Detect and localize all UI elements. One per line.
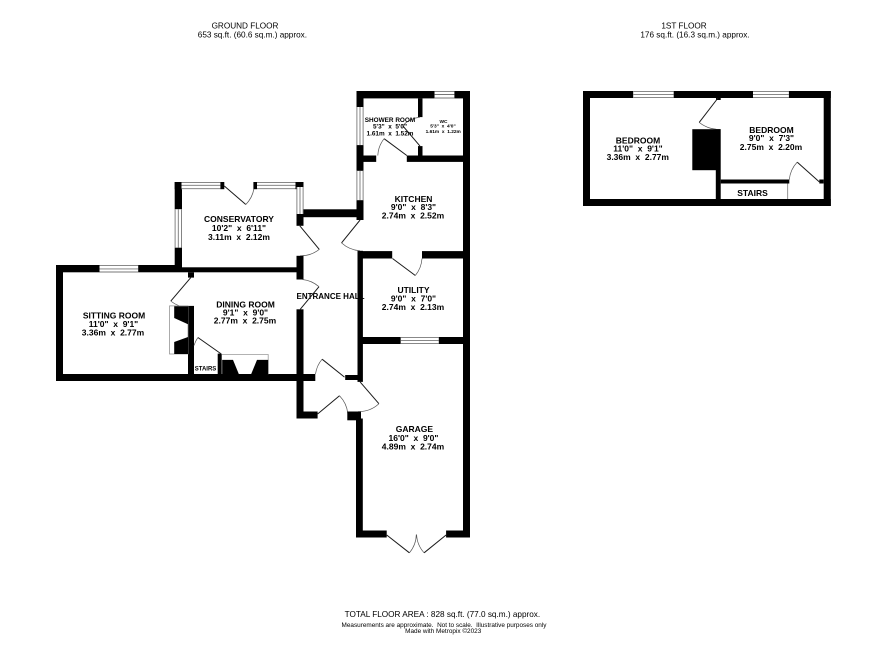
svg-text:STAIRS: STAIRS (195, 367, 217, 373)
svg-text:2.74m x 2.52m: 2.74m x 2.52m (382, 210, 445, 220)
svg-text:5'3" x 4'0": 5'3" x 4'0" (430, 124, 456, 130)
svg-text:653 sq.ft. (60.6 sq.m.) approx: 653 sq.ft. (60.6 sq.m.) approx. (198, 30, 307, 39)
svg-text:Made with Metropix ©2023: Made with Metropix ©2023 (405, 627, 482, 635)
svg-text:3.36m x 2.77m: 3.36m x 2.77m (82, 328, 145, 338)
svg-text:1.61m x 1.22m: 1.61m x 1.22m (426, 129, 461, 135)
svg-text:3.11m x 2.12m: 3.11m x 2.12m (208, 232, 270, 242)
svg-text:2.75m x 2.20m: 2.75m x 2.20m (740, 142, 803, 152)
svg-text:176 sq.ft. (16.3 sq.m.) approx: 176 sq.ft. (16.3 sq.m.) approx. (640, 30, 749, 39)
svg-text:STAIRS: STAIRS (737, 188, 768, 198)
svg-text:3.36m x 2.77m: 3.36m x 2.77m (607, 152, 670, 162)
svg-text:4.89m x 2.74m: 4.89m x 2.74m (382, 442, 445, 452)
svg-text:1.61m x 1.52m: 1.61m x 1.52m (367, 131, 414, 138)
svg-text:2.74m x 2.13m: 2.74m x 2.13m (382, 302, 445, 312)
svg-text:TOTAL FLOOR AREA : 828 sq.ft.: TOTAL FLOOR AREA : 828 sq.ft. (77.0 sq.m… (345, 610, 541, 619)
svg-text:2.77m x 2.75m: 2.77m x 2.75m (214, 316, 277, 326)
svg-text:ENTRANCE HALL: ENTRANCE HALL (297, 292, 365, 301)
